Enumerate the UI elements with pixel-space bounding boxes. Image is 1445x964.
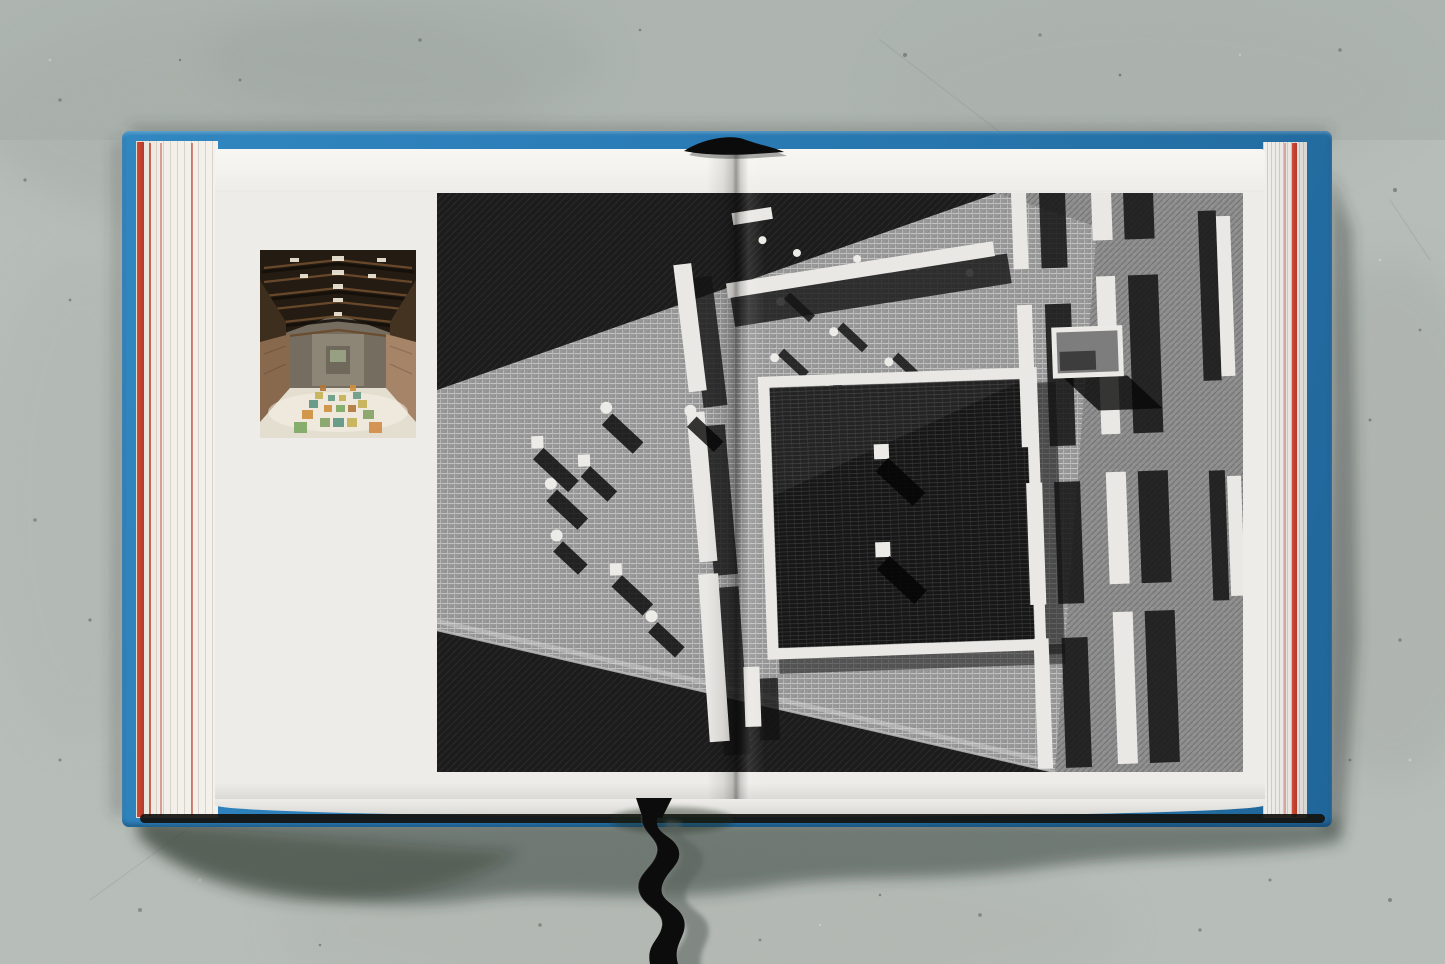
red-page-edge-line [160, 143, 162, 816]
red-page-edge-line [191, 143, 193, 816]
spine-gutter [707, 149, 765, 799]
open-spread: Above: The light shining through the dyn… [215, 149, 1265, 799]
photo-of-open-book-on-concrete: Above: The light shining through the dyn… [0, 0, 1445, 964]
red-page-edge-line [149, 143, 151, 816]
central-courtyard [763, 372, 1065, 674]
right-red-page-edge [1292, 143, 1297, 817]
floor-plan-drawing [437, 193, 1243, 772]
red-page-edge-line [1284, 143, 1286, 816]
interior-photo [260, 250, 416, 438]
bookmark-ribbon-top [680, 131, 790, 159]
left-red-page-edge [137, 142, 144, 817]
bookmark-ribbon [598, 788, 778, 964]
